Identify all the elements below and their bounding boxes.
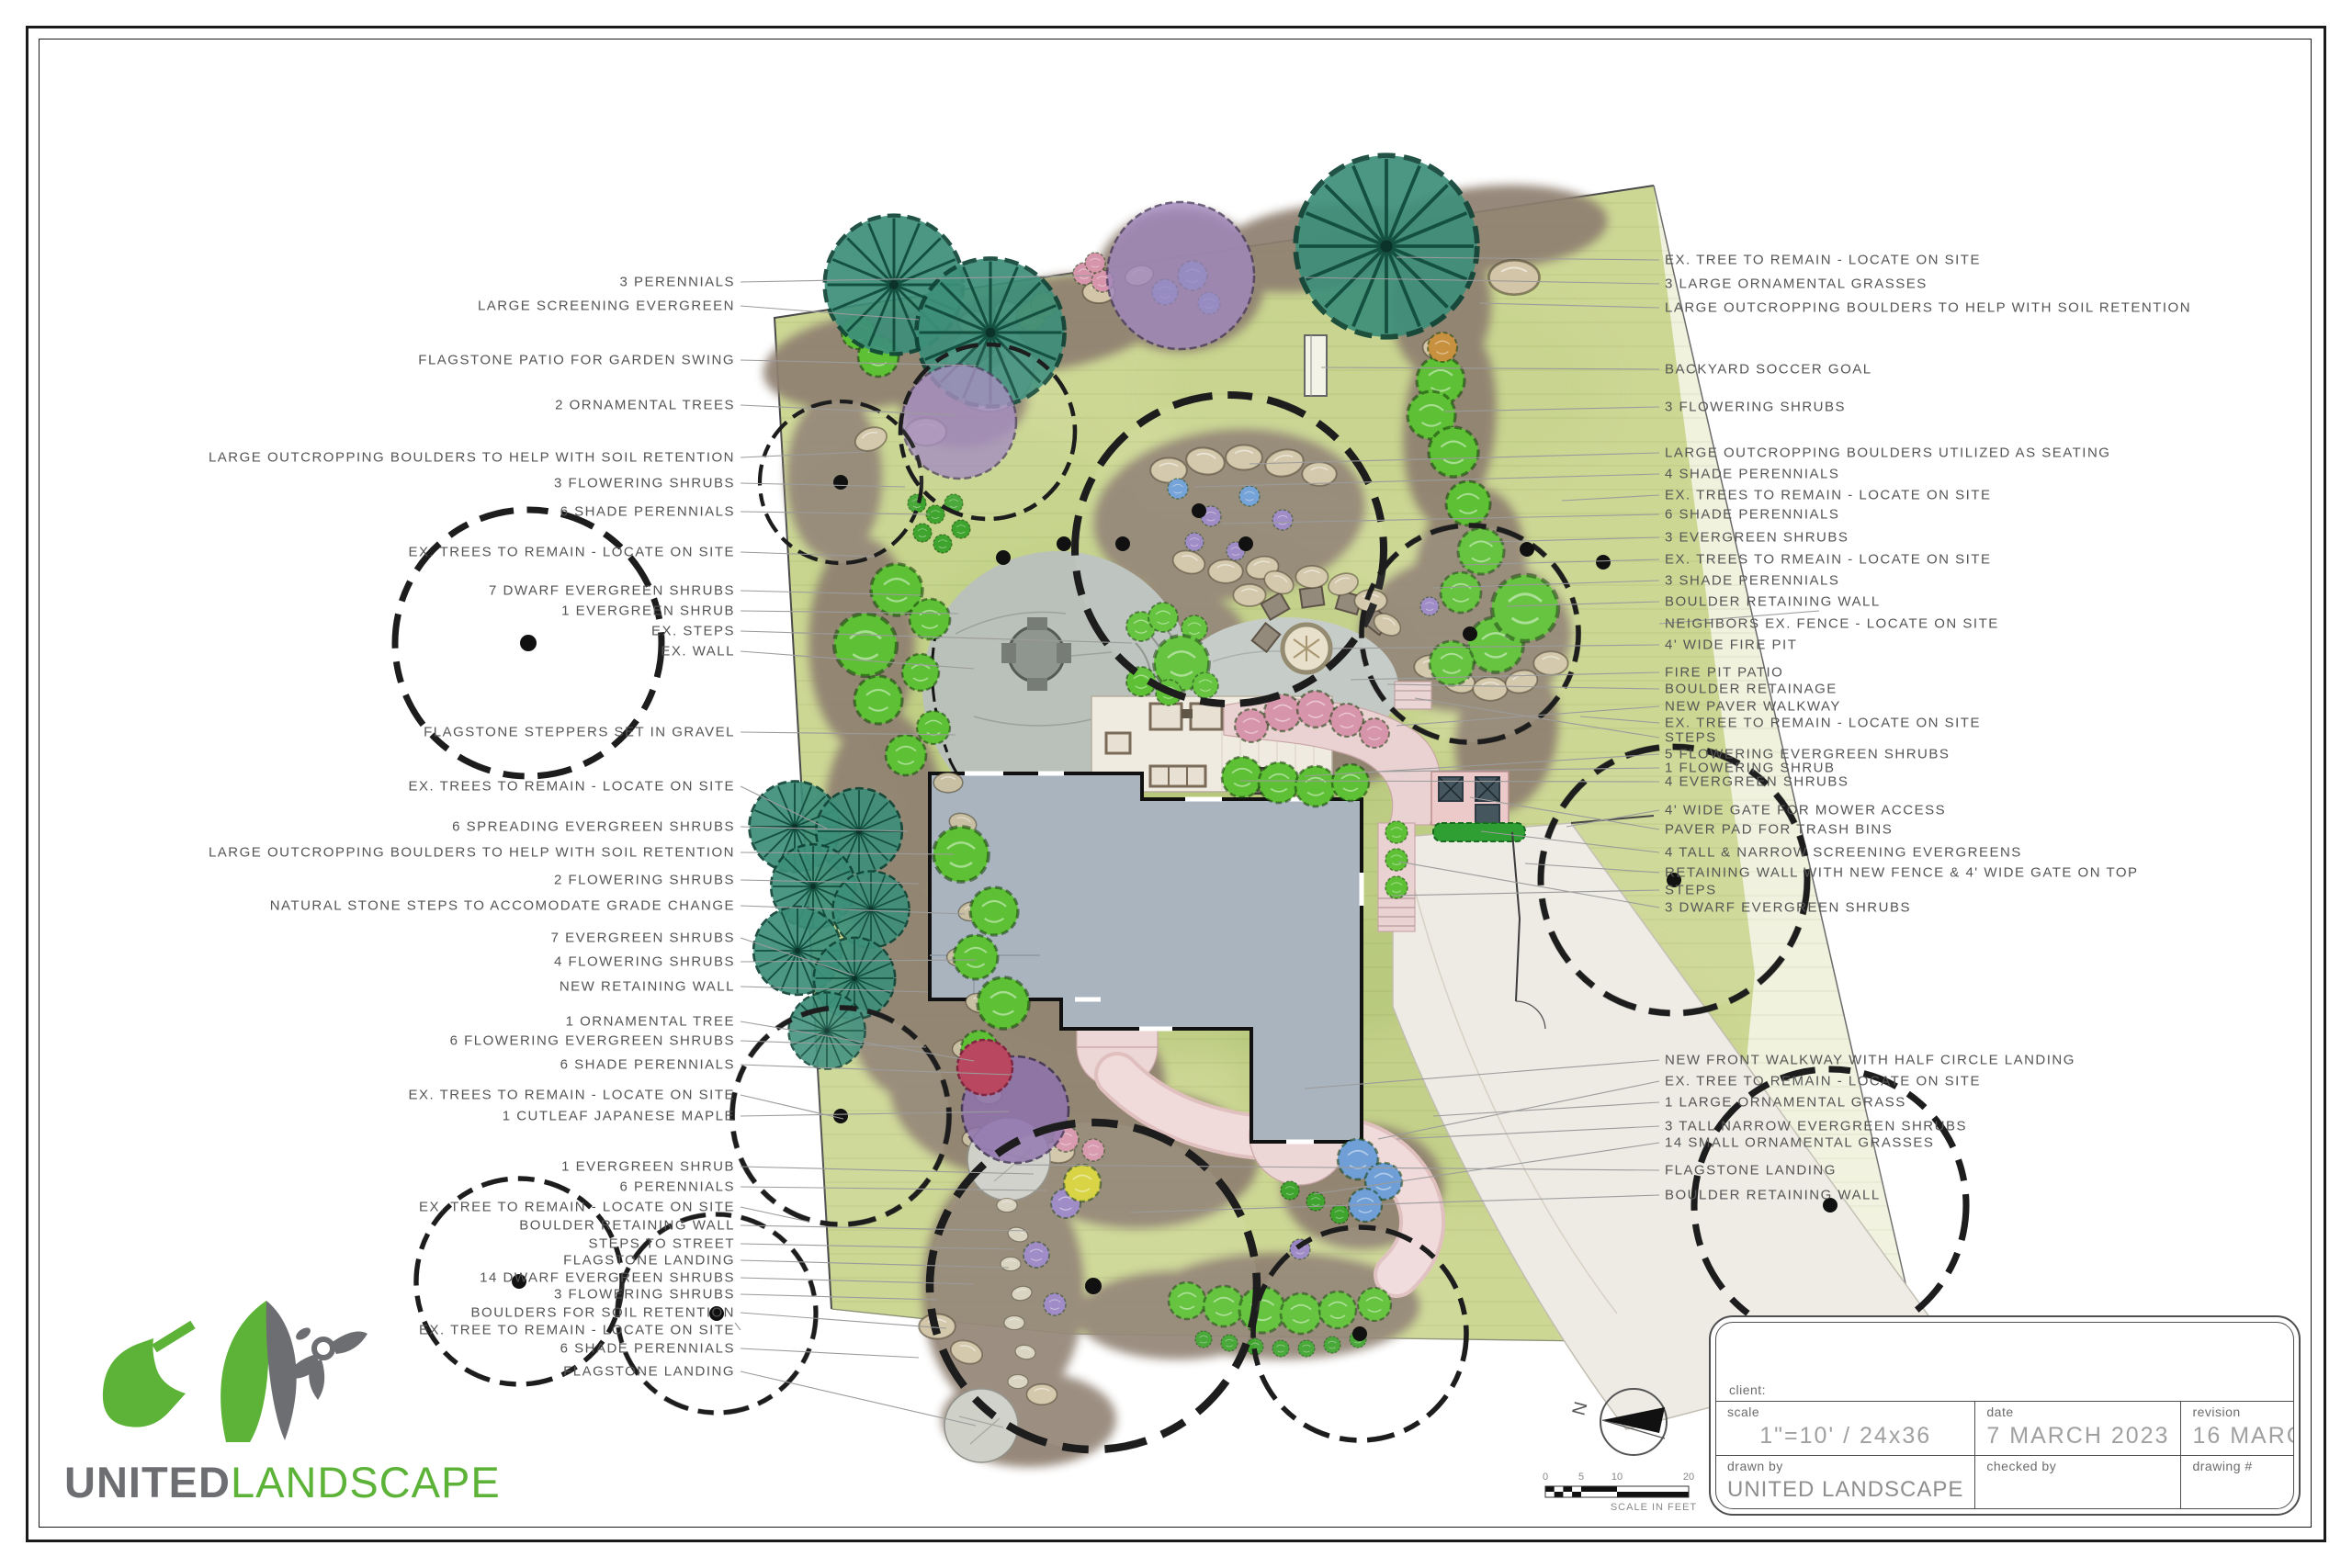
date-cell: date 7 MARCH 2023	[1975, 1402, 2181, 1456]
title-block: client: scale 1"=10' / 24x36 date 7 MARC…	[1709, 1315, 2301, 1516]
revision-label: revision	[2192, 1404, 2294, 1419]
revision-cell: revision 16 MARCH 2023	[2181, 1402, 2294, 1456]
drawing-number-label: drawing #	[2192, 1459, 2294, 1473]
scale-value: 1"=10' / 24x36	[1727, 1419, 1963, 1452]
drawing-number-value	[2192, 1473, 2294, 1506]
scale-tick-5: 5	[1578, 1472, 1584, 1483]
client-row: client:	[1716, 1323, 2293, 1402]
drawn-by-value: UNITED LANDSCAPE	[1727, 1473, 1963, 1506]
drawn-by-label: drawn by	[1727, 1459, 1963, 1473]
date-label: date	[1986, 1404, 2169, 1419]
drawn-by-cell: drawn by UNITED LANDSCAPE	[1716, 1456, 1975, 1508]
company-logo: UNITEDLANDSCAPE	[57, 1312, 489, 1523]
drawing-number-cell: drawing #	[2181, 1456, 2294, 1508]
logo-word-united: UNITED	[64, 1458, 231, 1506]
revision-value: 16 MARCH 2023	[2192, 1419, 2294, 1452]
logo-word-landscape: LANDSCAPE	[231, 1458, 501, 1506]
leader-line	[741, 1371, 976, 1426]
scale-label: scale	[1727, 1404, 1963, 1419]
scale-tick-10: 10	[1611, 1472, 1623, 1483]
date-value: 7 MARCH 2023	[1986, 1419, 2169, 1452]
north-label: N	[1569, 1400, 1592, 1418]
soccer-goal	[1305, 335, 1327, 396]
client-label: client:	[1729, 1382, 1766, 1397]
checked-by-label: checked by	[1986, 1459, 2169, 1473]
title-block-grid: scale 1"=10' / 24x36 date 7 MARCH 2023 r…	[1716, 1402, 2293, 1508]
checked-by-cell: checked by	[1975, 1456, 2181, 1508]
scale-cell: scale 1"=10' / 24x36	[1716, 1402, 1975, 1456]
scale-tick-20: 20	[1683, 1472, 1694, 1483]
scale-tick-0: 0	[1543, 1472, 1548, 1483]
checked-by-value	[1986, 1473, 2169, 1506]
company-logo-text: UNITEDLANDSCAPE	[64, 1457, 501, 1507]
scale-bar: 0 5 10 20 SCALE IN FEET	[1543, 1472, 1697, 1513]
scale-caption: SCALE IN FEET	[1611, 1502, 1697, 1513]
title-block-inner: client: scale 1"=10' / 24x36 date 7 MARC…	[1715, 1322, 2294, 1509]
landscape-plan-sheet: { "sheet_title": "Residential Landscape …	[0, 0, 2352, 1568]
